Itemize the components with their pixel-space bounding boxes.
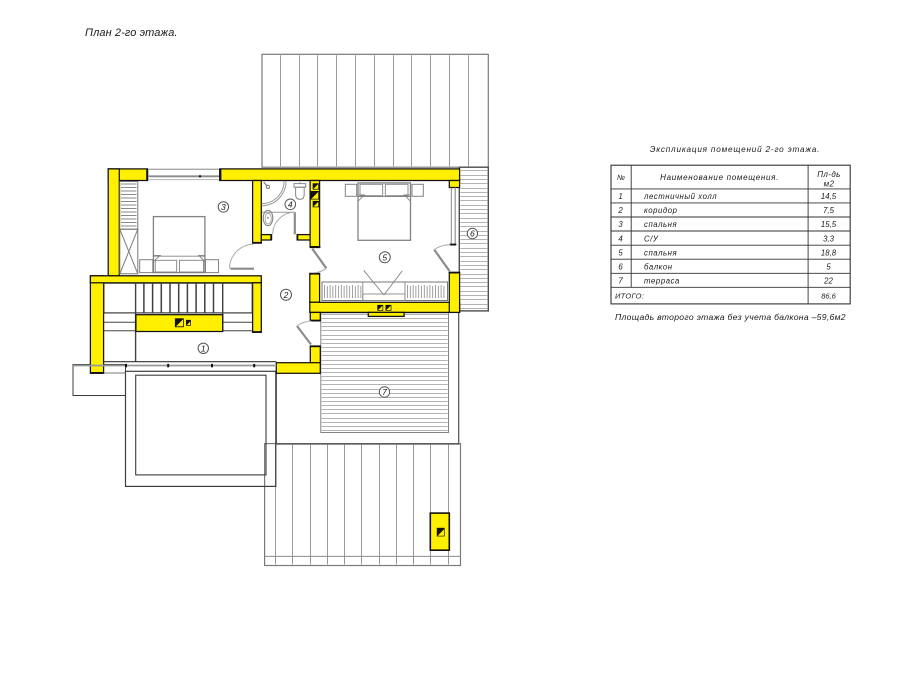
svg-text:Наименование помещения.: Наименование помещения. xyxy=(660,173,779,182)
svg-text:6: 6 xyxy=(470,229,475,239)
svg-text:1: 1 xyxy=(201,343,206,353)
svg-text:86,6: 86,6 xyxy=(821,292,836,301)
svg-text:7,5: 7,5 xyxy=(823,206,835,215)
svg-text:С/У: С/У xyxy=(644,234,659,243)
svg-text:Экспликация помещений 2-го эта: Экспликация помещений 2-го этажа. xyxy=(650,145,820,154)
svg-text:2: 2 xyxy=(617,206,623,215)
svg-text:15,5: 15,5 xyxy=(821,220,837,229)
svg-text:балкон: балкон xyxy=(644,262,673,271)
svg-text:спальня: спальня xyxy=(644,248,678,257)
svg-text:5: 5 xyxy=(618,248,623,257)
svg-text:4: 4 xyxy=(618,234,623,243)
svg-text:7: 7 xyxy=(618,276,623,285)
svg-text:6: 6 xyxy=(618,262,623,271)
svg-text:3,3: 3,3 xyxy=(823,234,835,243)
svg-text:1: 1 xyxy=(618,192,622,201)
svg-text:14,5: 14,5 xyxy=(821,192,837,201)
svg-text:3: 3 xyxy=(221,202,226,212)
svg-text:лестничный холл: лестничный холл xyxy=(643,192,717,201)
svg-text:3: 3 xyxy=(618,220,623,229)
svg-text:4: 4 xyxy=(288,199,293,209)
svg-text:5: 5 xyxy=(382,252,387,262)
svg-text:терраса: терраса xyxy=(644,276,680,285)
svg-text:22: 22 xyxy=(823,276,833,285)
svg-text:№: № xyxy=(617,173,625,182)
svg-text:спальня: спальня xyxy=(644,220,678,229)
svg-text:7: 7 xyxy=(382,387,387,397)
svg-text:м2: м2 xyxy=(824,180,835,189)
svg-text:Пл-дь: Пл-дь xyxy=(817,170,841,179)
svg-text:ИТОГО:: ИТОГО: xyxy=(615,292,644,301)
svg-text:5: 5 xyxy=(826,262,831,271)
svg-text:Площадь второго этажа без учет: Площадь второго этажа без учета балкона … xyxy=(615,312,846,322)
svg-text:коридор: коридор xyxy=(644,206,678,215)
svg-text:18,8: 18,8 xyxy=(821,248,837,257)
svg-text:План 2-го этажа.: План 2-го этажа. xyxy=(85,27,178,39)
svg-text:2: 2 xyxy=(283,290,289,300)
